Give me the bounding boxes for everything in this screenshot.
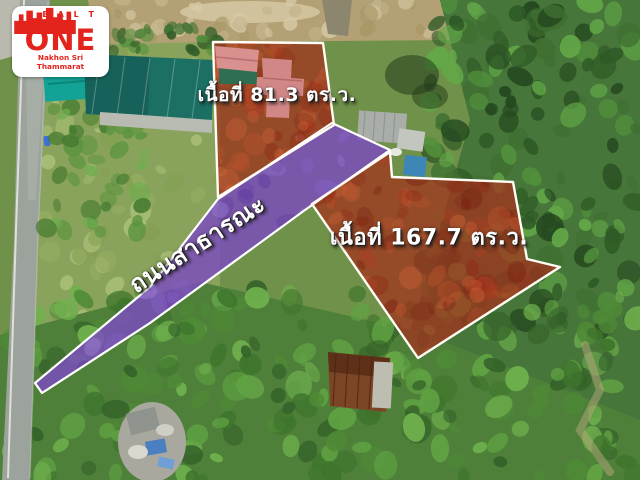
realty-one-logo: R E A L T Y ONE Nakhon Sri Thammarat — [12, 6, 109, 77]
rusty-shack — [328, 352, 393, 412]
plot-small-area-label: เนื้อที่ 81.3 ตร.ว. — [198, 80, 357, 110]
city-skyline-icon — [12, 6, 78, 34]
blue-tarp — [403, 155, 427, 177]
aerial-photo-listing: เนื้อที่ 81.3 ตร.ว. เนื้อที่ 167.7 ตร.ว.… — [0, 0, 640, 480]
debris-cluster — [118, 402, 186, 480]
plot-large-area-label: เนื้อที่ 167.7 ตร.ว. — [330, 220, 528, 255]
